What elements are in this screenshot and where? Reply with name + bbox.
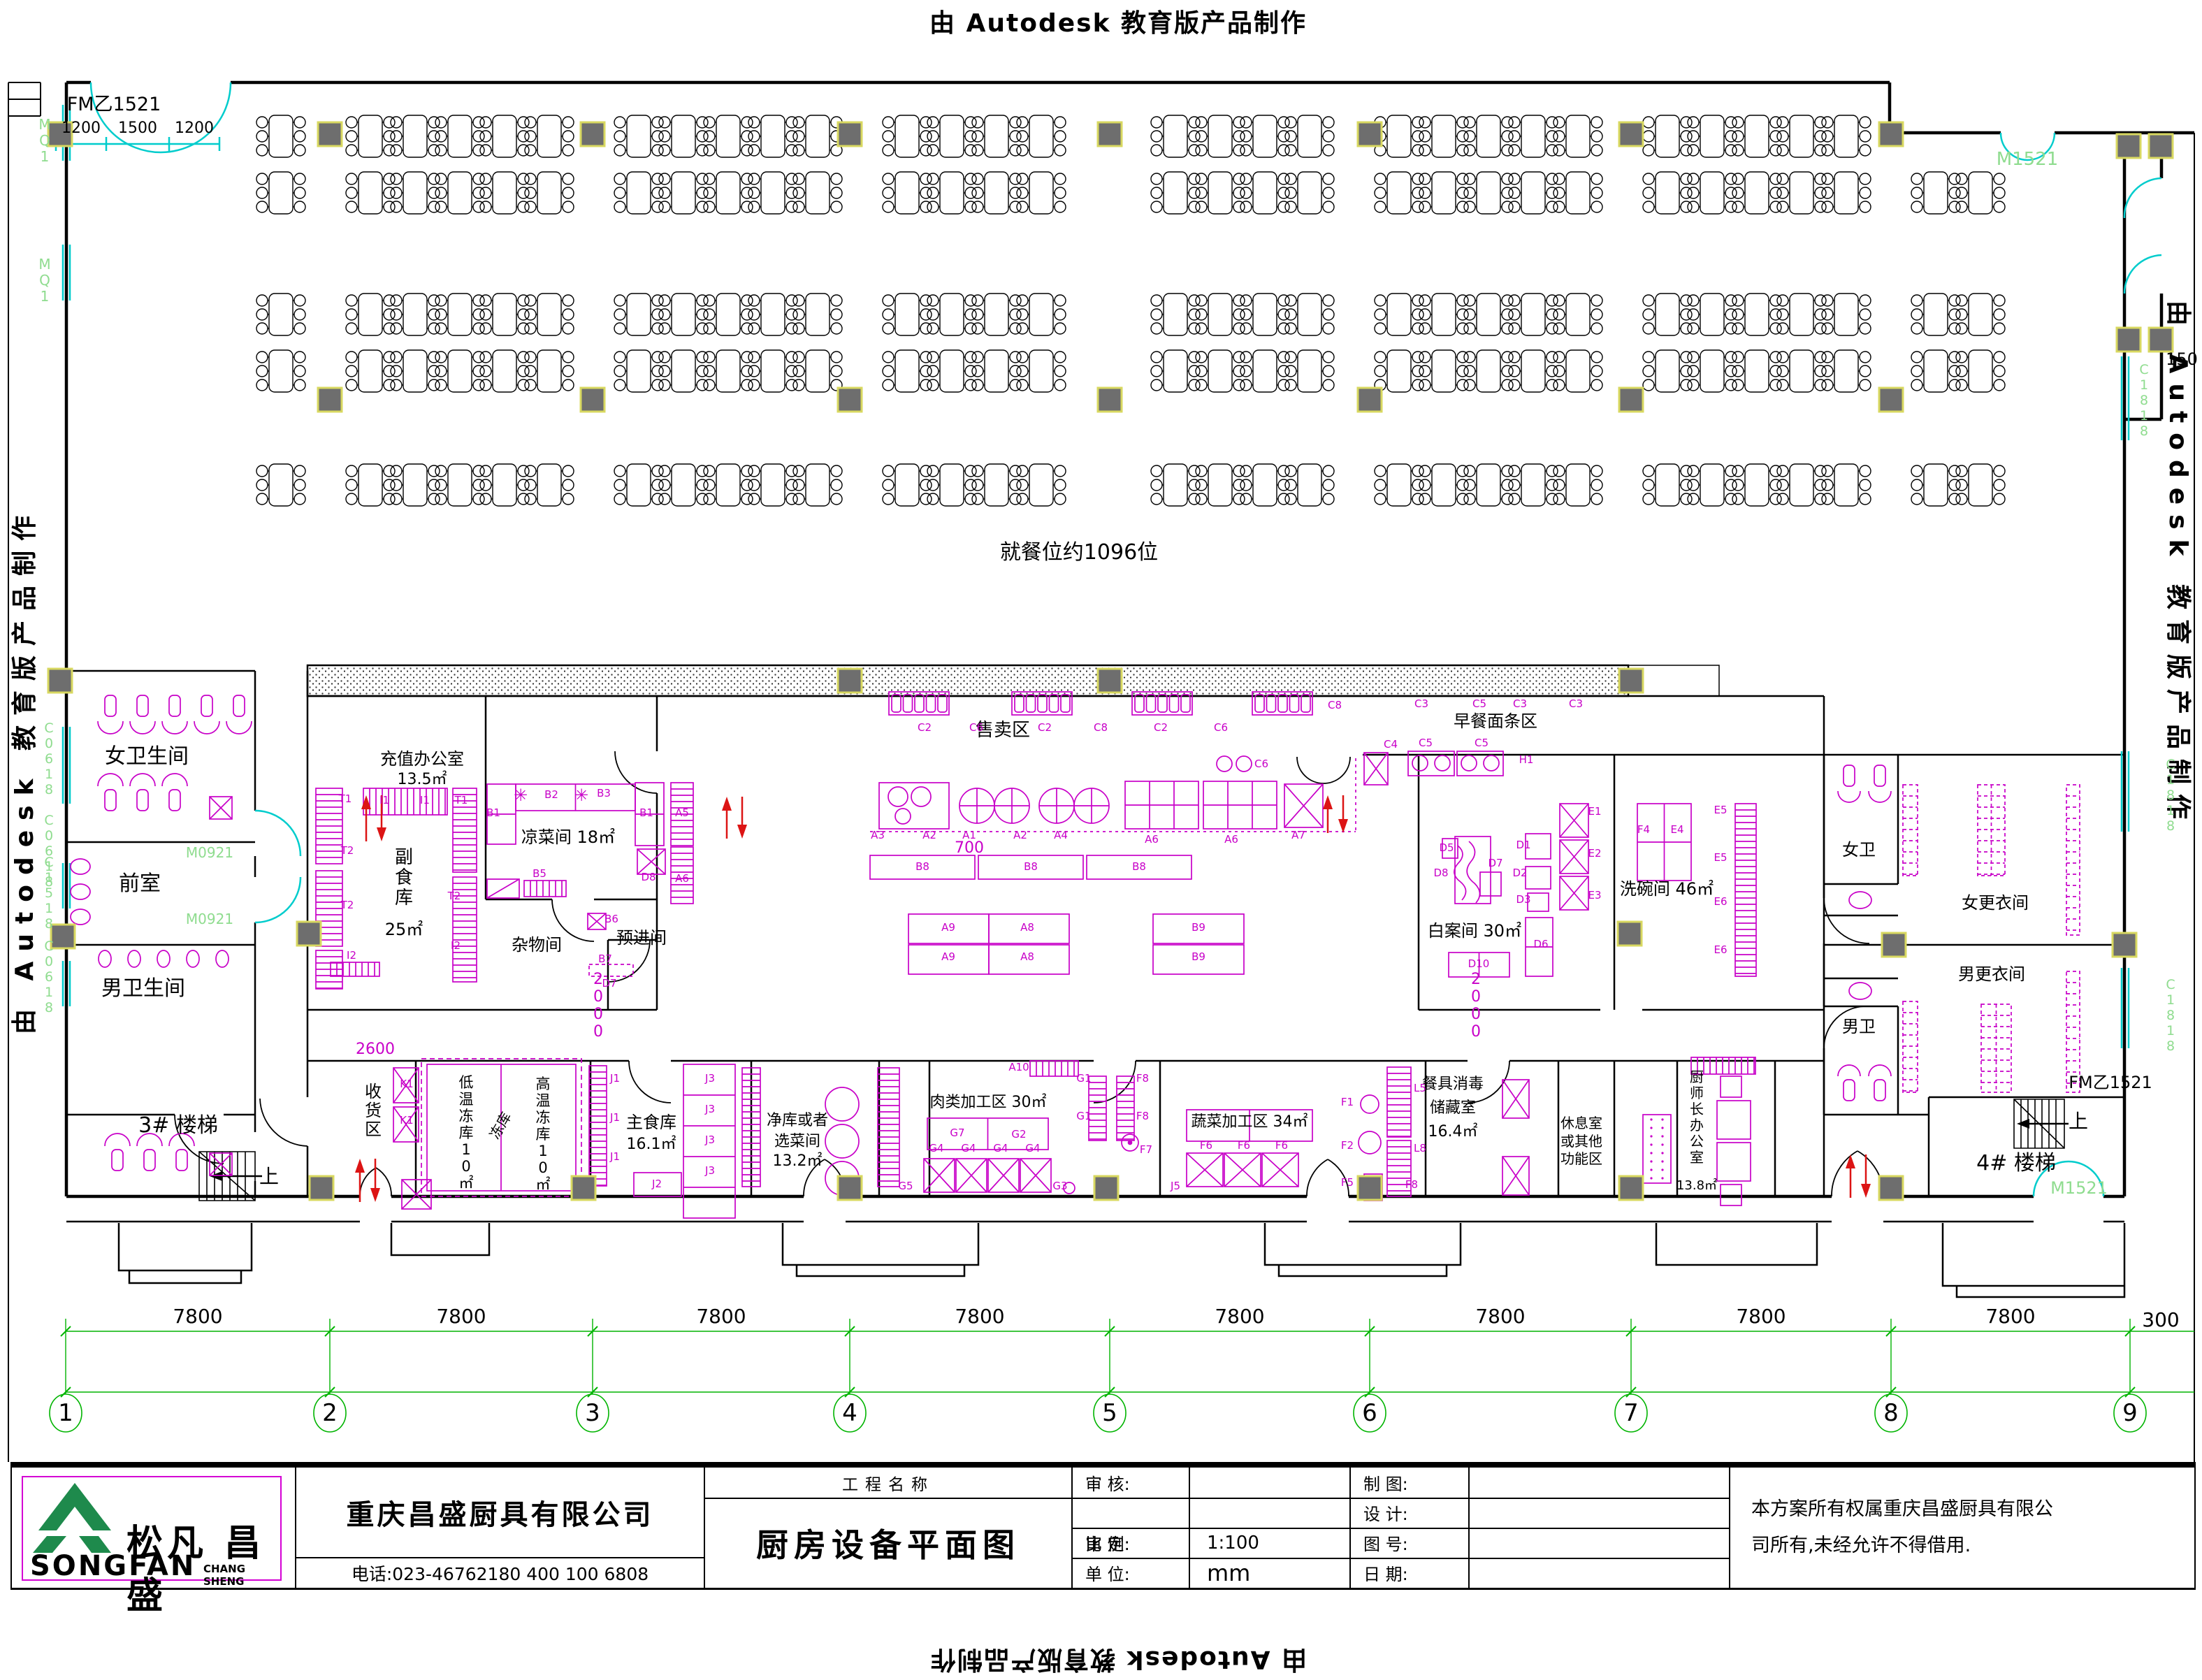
chair: [883, 295, 894, 306]
chair: [659, 295, 670, 306]
chair: [1956, 352, 1967, 363]
chair: [1010, 323, 1021, 334]
dining-table: [525, 115, 574, 157]
chair: [1553, 352, 1565, 363]
urinal: [157, 950, 170, 967]
room-label: ㎡: [536, 1176, 551, 1193]
chair: [1055, 365, 1066, 377]
chair: [1860, 187, 1871, 198]
equipment-code: B9: [1191, 950, 1205, 963]
table-top: [627, 350, 651, 392]
equipment-code: F8: [1136, 1072, 1149, 1085]
chair: [831, 352, 842, 363]
dining-table: [659, 350, 708, 392]
table-top: [672, 294, 695, 335]
chair: [697, 295, 708, 306]
chair: [1860, 352, 1871, 363]
chair: [1822, 493, 1833, 505]
equipment-code: K1: [400, 1114, 413, 1127]
logo-en-text: SONGFAN: [30, 1550, 196, 1582]
chair: [1956, 365, 1967, 377]
room-label: 男卫生间: [101, 976, 185, 1001]
chair: [1055, 145, 1066, 156]
chair: [1591, 117, 1602, 128]
table-top: [1432, 172, 1456, 214]
chair: [1196, 479, 1207, 491]
chair: [748, 117, 760, 128]
chair: [1860, 201, 1871, 212]
structural-column: [572, 1176, 595, 1200]
room-label: 男更衣间: [1958, 964, 2025, 984]
room-label: 女卫生间: [105, 744, 189, 769]
table-top: [1790, 350, 1813, 392]
stall-door: [1869, 1065, 1891, 1076]
dining-table: [614, 464, 663, 506]
table-top: [806, 294, 830, 335]
room-label: 温: [536, 1092, 551, 1109]
chair: [1777, 379, 1788, 391]
table-top: [940, 464, 964, 506]
chair: [518, 479, 529, 491]
chair: [1553, 131, 1565, 142]
chair: [563, 352, 574, 363]
chair: [1822, 187, 1833, 198]
chair: [1643, 365, 1654, 377]
table-top: [1477, 294, 1500, 335]
chair: [391, 493, 402, 505]
chair: [391, 465, 402, 477]
chair: [1278, 379, 1289, 391]
equipment-code: B1: [486, 806, 500, 819]
chair: [972, 465, 983, 477]
equipment-code: C3: [1513, 697, 1527, 710]
dining-table: [525, 294, 574, 335]
chair: [1457, 379, 1468, 391]
grid-bubble-label: 5: [1102, 1399, 1117, 1427]
chair: [920, 493, 932, 505]
chair: [972, 187, 983, 198]
chair: [1822, 379, 1833, 391]
dining-table: [1822, 115, 1871, 157]
equipment-code: E5: [1714, 851, 1727, 864]
dimension-label: 1500: [118, 120, 157, 137]
dining-table: [1956, 172, 2005, 214]
entrance-porches: [119, 1223, 2124, 1297]
equipment-code: F5: [1341, 1176, 1354, 1189]
chair: [1055, 131, 1066, 142]
chair: [1323, 117, 1334, 128]
chair: [1196, 117, 1207, 128]
chair: [741, 309, 753, 320]
chair: [1688, 295, 1699, 306]
wash-basin: [1849, 892, 1871, 908]
room-label: 0: [461, 1158, 470, 1175]
room-label: M0921: [186, 844, 233, 861]
chair: [1464, 479, 1475, 491]
dining-table: [1553, 464, 1602, 506]
dining-table: [1285, 464, 1334, 506]
equipment-code: D3: [1516, 893, 1530, 906]
chair: [1375, 295, 1386, 306]
chair: [1323, 309, 1334, 320]
equipment-code: D8: [1433, 867, 1448, 879]
table-top: [1521, 294, 1545, 335]
chair: [435, 352, 447, 363]
chair: [1375, 173, 1386, 184]
chair: [748, 131, 760, 142]
cabinet-unit: [1717, 1101, 1751, 1139]
table-top: [1924, 350, 1948, 392]
round-equipment: [1461, 755, 1477, 771]
sink-slot: [1170, 695, 1179, 712]
equipment-code: C3: [1569, 697, 1583, 710]
chair: [1681, 479, 1692, 491]
chair: [652, 145, 663, 156]
equipment-code: J5: [1170, 1180, 1180, 1192]
chair: [1285, 379, 1296, 391]
toilet: [105, 790, 116, 811]
flow-arrow-head: [377, 827, 386, 841]
dining-table: [704, 172, 753, 214]
chair: [927, 131, 939, 142]
round-equipment: [888, 787, 908, 806]
chair: [1509, 493, 1520, 505]
chair: [1240, 493, 1252, 505]
table-top: [1253, 350, 1277, 392]
table-top: [627, 115, 651, 157]
table-top: [1521, 172, 1545, 214]
dining-table: [1777, 294, 1826, 335]
chair: [920, 323, 932, 334]
chair: [1464, 309, 1475, 320]
chair: [1419, 323, 1430, 334]
dining-table: [1911, 350, 1960, 392]
chair: [1412, 295, 1424, 306]
table-top: [1521, 350, 1545, 392]
chair: [1055, 201, 1066, 212]
chair: [927, 479, 939, 491]
chair: [1419, 173, 1430, 184]
chair: [659, 309, 670, 320]
table-top: [1700, 115, 1724, 157]
chair: [1688, 365, 1699, 377]
chair: [384, 465, 395, 477]
chair: [518, 145, 529, 156]
chair: [346, 352, 357, 363]
chair: [1375, 465, 1386, 477]
dining-table: [748, 172, 797, 214]
chair: [391, 117, 402, 128]
table-top: [672, 464, 695, 506]
cabinet-unit: [1717, 1143, 1751, 1181]
chair: [1412, 379, 1424, 391]
table-top: [1432, 350, 1456, 392]
chair: [294, 187, 305, 198]
chair: [1196, 352, 1207, 363]
chair: [525, 145, 536, 156]
chair: [920, 173, 932, 184]
equipment-code: J2: [651, 1178, 662, 1190]
chair: [1643, 379, 1654, 391]
number-label: 图 号:: [1351, 1528, 1468, 1558]
chair: [428, 187, 440, 198]
chair: [1770, 323, 1781, 334]
chair: [563, 379, 574, 391]
chair: [1278, 352, 1289, 363]
chair: [786, 145, 797, 156]
table-top: [1969, 464, 1992, 506]
chair: [1553, 117, 1565, 128]
chair: [1860, 479, 1871, 491]
dining-table: [1464, 115, 1513, 157]
chair: [518, 379, 529, 391]
chair: [384, 187, 395, 198]
dining-table: [1196, 464, 1245, 506]
table-top: [1834, 115, 1858, 157]
table-top: [269, 464, 293, 506]
chair: [1732, 365, 1744, 377]
chair: [1949, 187, 1960, 198]
room-label: 白案间 30㎡: [1428, 921, 1521, 941]
sink-slot: [1181, 695, 1190, 712]
table-top: [1790, 464, 1813, 506]
chair: [1233, 145, 1245, 156]
dining-table: [659, 172, 708, 214]
bench-dot: [1661, 1135, 1663, 1137]
room-label: FM乙1521: [67, 94, 161, 115]
chair: [1457, 323, 1468, 334]
chair: [1911, 187, 1922, 198]
equipment-code: T2: [340, 899, 354, 911]
chair: [1189, 465, 1200, 477]
room-label: 1: [2166, 1023, 2175, 1038]
dining-table: [346, 464, 395, 506]
chair: [518, 365, 529, 377]
table-top: [1566, 172, 1590, 214]
chair: [1240, 323, 1252, 334]
chair: [1956, 323, 1967, 334]
chair: [614, 145, 625, 156]
chair: [1688, 479, 1699, 491]
table-top: [1432, 294, 1456, 335]
table-top: [1521, 115, 1545, 157]
structural-column: [1094, 1176, 1118, 1200]
toilet: [144, 1150, 155, 1171]
chair: [1419, 309, 1430, 320]
chair: [831, 323, 842, 334]
chair: [1419, 479, 1430, 491]
round-equipment: [1361, 1095, 1379, 1113]
chair: [256, 131, 268, 142]
grid-bubble-label: 6: [1362, 1399, 1377, 1427]
chair: [1189, 309, 1200, 320]
structural-column: [581, 388, 604, 412]
chair: [563, 173, 574, 184]
chair: [428, 479, 440, 491]
chair: [1643, 201, 1654, 212]
chair: [1643, 352, 1654, 363]
chair: [480, 352, 491, 363]
chair: [1815, 295, 1826, 306]
flow-arrow-head: [722, 797, 732, 811]
dining-table: [614, 172, 663, 214]
chair: [525, 365, 536, 377]
chair: [384, 493, 395, 505]
sink-slot: [892, 695, 901, 712]
table-top: [1924, 172, 1948, 214]
room-label: 8: [45, 916, 53, 932]
room-label: 5: [45, 885, 53, 901]
structural-column: [1098, 122, 1122, 146]
dining-table: [435, 172, 484, 214]
chair: [831, 465, 842, 477]
chair: [428, 173, 440, 184]
round-equipment: [1236, 756, 1252, 772]
chair: [1240, 201, 1252, 212]
room-label: 6: [45, 969, 53, 985]
dining-table: [1732, 464, 1781, 506]
chair: [659, 145, 670, 156]
chair: [1725, 309, 1737, 320]
dining-table: [346, 172, 395, 214]
table-top: [1924, 294, 1948, 335]
chair: [1151, 323, 1162, 334]
room-label: C: [2166, 977, 2175, 992]
dining-table: [883, 350, 932, 392]
flow-arrow-head: [1323, 795, 1333, 809]
chair: [614, 493, 625, 505]
chair: [972, 479, 983, 491]
chair: [1815, 131, 1826, 142]
equipment-code: A7: [1291, 829, 1305, 841]
chair: [563, 309, 574, 320]
chair: [1681, 117, 1692, 128]
bench-dot: [1661, 1127, 1663, 1129]
room-label: ㎡: [459, 1175, 474, 1192]
chair: [1777, 352, 1788, 363]
chair: [1822, 117, 1833, 128]
chair: [659, 131, 670, 142]
chair: [697, 365, 708, 377]
equipment-code: B8: [1132, 860, 1146, 873]
room-label: 就餐位约1096位: [1000, 540, 1158, 565]
chair: [965, 187, 976, 198]
chair: [1419, 131, 1430, 142]
chair: [652, 309, 663, 320]
table-top: [761, 172, 785, 214]
chair: [256, 479, 268, 491]
structural-column: [318, 122, 342, 146]
sheet-frame: [8, 82, 2194, 1462]
bench-dot: [1661, 1168, 1663, 1171]
chair: [927, 201, 939, 212]
structural-column: [2117, 134, 2141, 158]
chair: [1151, 187, 1162, 198]
chair: [748, 352, 760, 363]
chair: [1010, 465, 1021, 477]
chair: [1815, 352, 1826, 363]
chair: [1323, 145, 1334, 156]
chair: [786, 365, 797, 377]
table-top: [761, 294, 785, 335]
chair: [748, 323, 760, 334]
equipment-code: G7: [950, 1127, 964, 1139]
chair: [1681, 295, 1692, 306]
room-label: 8: [2140, 393, 2148, 408]
chair: [1196, 493, 1207, 505]
chair: [1464, 379, 1475, 391]
table-top: [358, 115, 382, 157]
equipment-code: B8: [915, 860, 929, 873]
room-label: 4# 楼梯: [1976, 1151, 2056, 1175]
chair: [741, 365, 753, 377]
room-label: 早餐面条区: [1454, 711, 1537, 731]
chair: [1956, 309, 1967, 320]
chair: [1240, 379, 1252, 391]
table-top: [1387, 294, 1411, 335]
chair: [1547, 493, 1558, 505]
table-top: [940, 294, 964, 335]
chair: [1994, 187, 2005, 198]
chair: [1196, 131, 1207, 142]
table-top: [1745, 294, 1769, 335]
chair: [1055, 309, 1066, 320]
chair: [1591, 365, 1602, 377]
chair: [346, 309, 357, 320]
table-top: [1969, 172, 1992, 214]
chair: [1010, 173, 1021, 184]
shelf-unit: [1030, 1061, 1078, 1076]
chair: [435, 117, 447, 128]
chair: [1419, 352, 1430, 363]
chair: [831, 173, 842, 184]
wash-basin: [71, 859, 90, 874]
chair: [697, 173, 708, 184]
shelf-unit: [1117, 1076, 1134, 1140]
chair: [1994, 365, 2005, 377]
chair: [704, 465, 715, 477]
dining-table: [1419, 464, 1468, 506]
structural-column: [1882, 933, 1906, 957]
dining-table: [1777, 115, 1826, 157]
chair: [473, 479, 484, 491]
chair: [614, 173, 625, 184]
stall-door: [162, 721, 187, 734]
structural-column: [2149, 134, 2173, 158]
equipment-code: C4: [1384, 738, 1398, 751]
toilet: [137, 695, 148, 716]
chair: [1457, 479, 1468, 491]
room-label: 功能区: [1560, 1150, 1602, 1167]
chair: [1547, 173, 1558, 184]
room-label: 肉类加工区 30㎡: [930, 1093, 1047, 1111]
room-label: 0: [538, 1159, 547, 1176]
title-block-copyright-cell: 本方案所有权属重庆昌盛厨具有限公 司所有,未经允许不得借用.: [1729, 1468, 2194, 1588]
chair: [518, 187, 529, 198]
table-top: [716, 464, 740, 506]
room-label: 0: [45, 736, 53, 751]
equipment-code: A6: [675, 872, 689, 885]
equipment-code: F6: [1275, 1139, 1288, 1152]
chair: [883, 493, 894, 505]
dining-table: [256, 115, 305, 157]
chair: [883, 117, 894, 128]
stall-door: [130, 774, 155, 786]
title-block-company-cell: 重庆昌盛厨具有限公司 电话:023-46762180 400 100 6808: [295, 1468, 704, 1588]
table-top: [1432, 115, 1456, 157]
dining-table: [1240, 294, 1289, 335]
equipment-code: C2: [918, 721, 932, 734]
